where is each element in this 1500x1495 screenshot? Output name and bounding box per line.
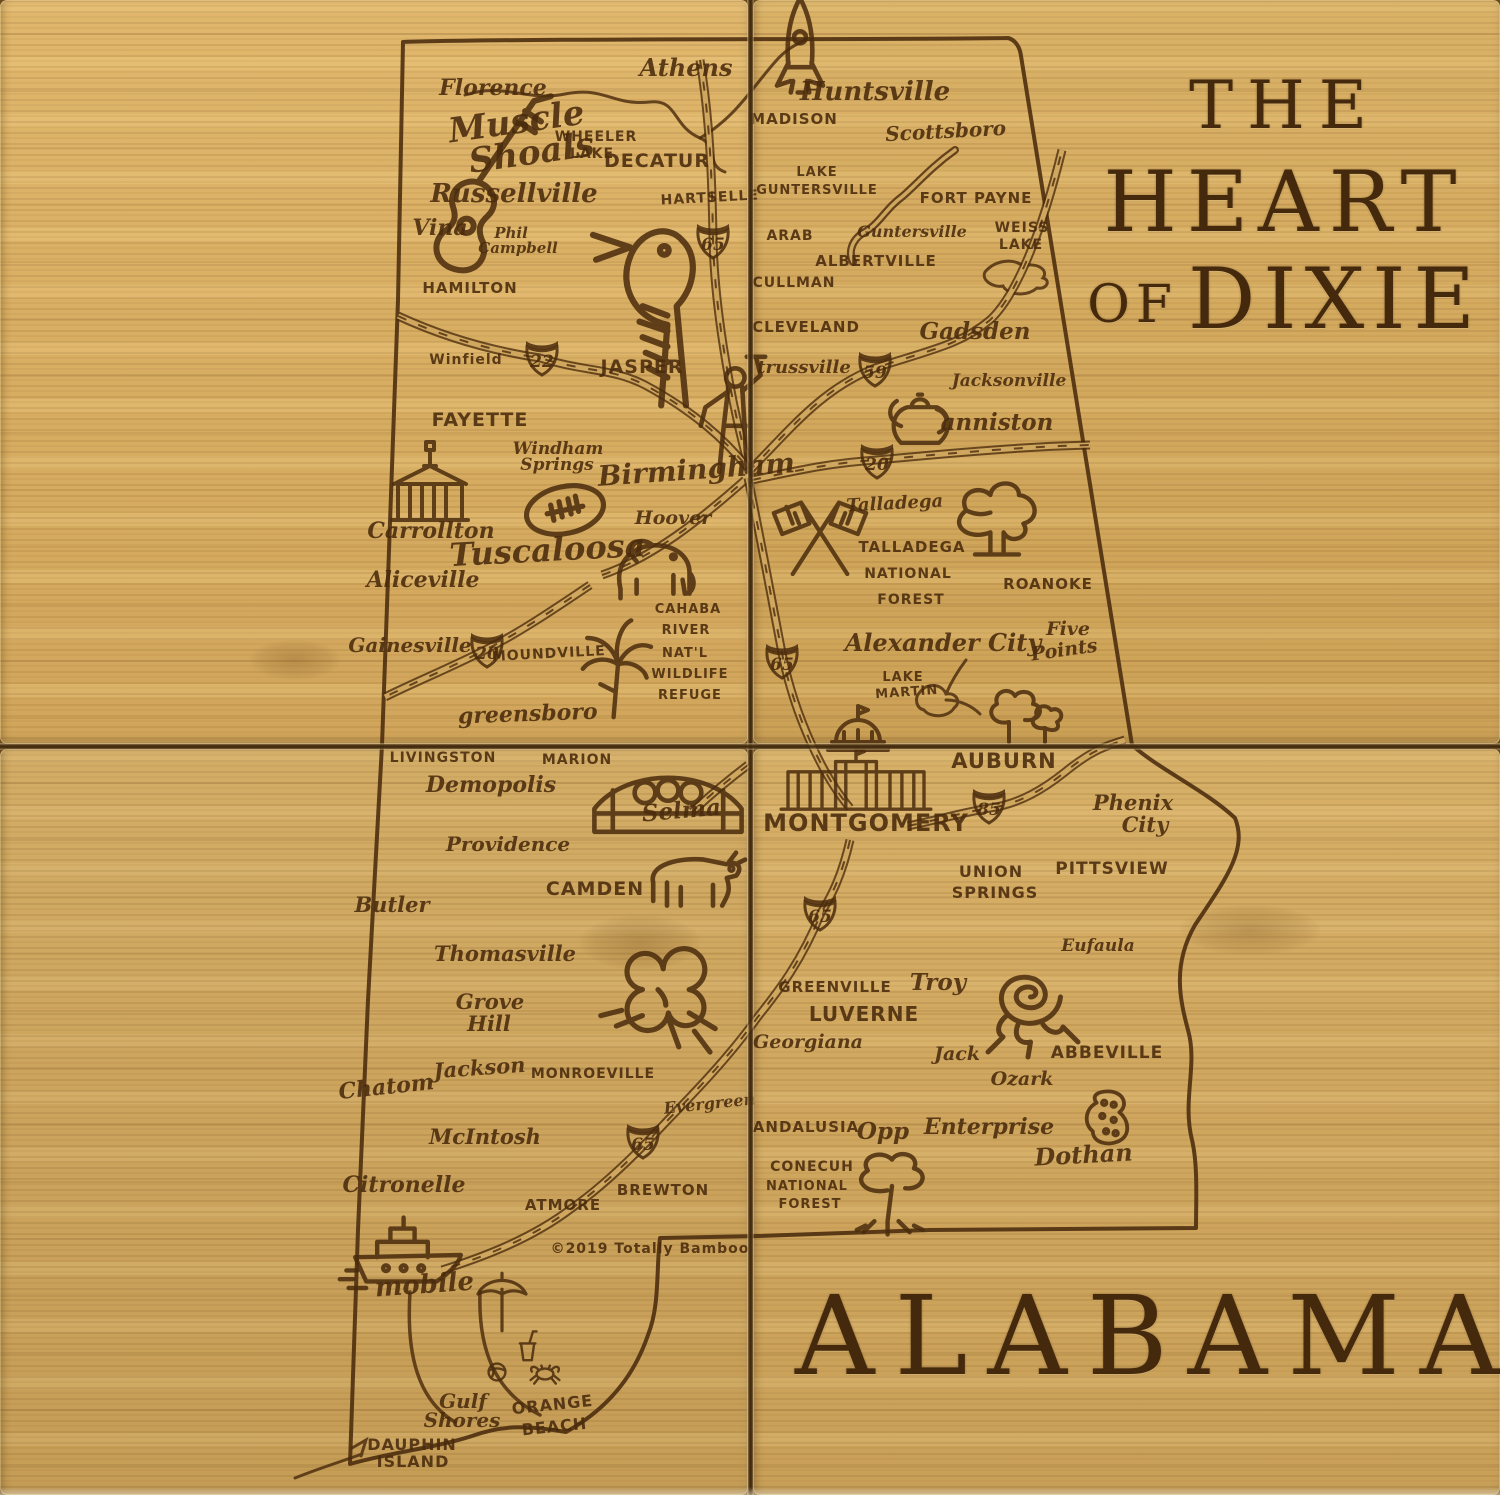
map-label: Florence: [438, 75, 547, 101]
highway-shield-59: 59: [859, 352, 891, 386]
map-label: FOREST: [877, 592, 944, 608]
map-label: Hill: [466, 1011, 511, 1036]
capitol-building-icon: [781, 748, 931, 809]
map-label: SPRINGS: [952, 883, 1039, 902]
map-label: MARTIN: [875, 683, 939, 702]
cow-icon: [653, 853, 745, 906]
svg-text:65: 65: [808, 907, 832, 927]
map-label: MADISON: [750, 110, 838, 128]
teapot-icon: [890, 395, 948, 443]
map-label: PITTSVIEW: [1055, 859, 1168, 879]
map-label: Demopolis: [425, 772, 556, 798]
map-label: CAHABA: [655, 602, 722, 617]
map-label: greensboro: [458, 699, 598, 730]
map-label: Aliceville: [364, 567, 479, 593]
state-name: ALABAMA: [795, 1272, 1500, 1400]
map-label: ABBEVILLE: [1051, 1043, 1163, 1063]
map-label: WILDLIFE: [651, 667, 728, 682]
svg-text:22: 22: [529, 352, 554, 372]
map-label: TALLADEGA: [858, 538, 965, 556]
map-label: Shores: [424, 1408, 501, 1432]
road-i20: [752, 445, 1090, 480]
map-label: ANDALUSIA: [753, 1118, 859, 1136]
map-label: City: [1122, 812, 1170, 837]
drink-icon: [520, 1331, 537, 1360]
title-line-of-dixie: OFDIXIE: [1075, 250, 1495, 348]
title-line-the: THE: [1075, 58, 1495, 154]
map-label: Campbell: [478, 239, 558, 257]
title-heart-of-dixie: THE HEART OFDIXIE: [1075, 58, 1495, 348]
map-label: Scottsboro: [885, 116, 1007, 146]
map-label: JASPER: [599, 356, 684, 378]
svg-text:65: 65: [631, 1135, 655, 1155]
map-label: ISLAND: [377, 1452, 450, 1471]
map-label: Gainesville: [348, 633, 471, 657]
map-label: Birmingham: [596, 446, 796, 493]
map-label: FOREST: [778, 1197, 841, 1212]
map-label: CULLMAN: [753, 275, 836, 291]
map-label: Springs: [520, 455, 594, 475]
map-label: MONTGOMERY: [763, 809, 969, 837]
map-label: Citronelle: [343, 1172, 466, 1198]
map-label: WHEELER: [555, 129, 638, 145]
map-label: ROANOKE: [1003, 575, 1093, 593]
map-label: Jackson: [429, 1052, 526, 1084]
highway-shield-20: 20: [861, 444, 893, 478]
map-label: Evergreen: [662, 1089, 756, 1118]
trees-icon: [991, 691, 1061, 742]
map-label: Jack: [931, 1043, 980, 1065]
map-label: Guntersville: [857, 222, 967, 241]
map-label: FORT PAYNE: [920, 189, 1033, 207]
map-label: Opp: [857, 1118, 909, 1145]
map-label: ©2019 Totally Bamboo: [551, 1241, 750, 1257]
svg-text:20: 20: [864, 455, 889, 475]
map-label: Butler: [353, 892, 431, 917]
peanut-icon: [1087, 1091, 1128, 1143]
map-label: Selma: [641, 794, 722, 828]
map-label: Eufaula: [1060, 936, 1134, 956]
map-label: Talladega: [846, 490, 944, 516]
oak-tree-icon: [959, 483, 1035, 554]
map-label: NATIONAL: [766, 1179, 848, 1194]
title-word-dixie: DIXIE: [1188, 250, 1483, 348]
map-label: CLEVELAND: [752, 318, 860, 336]
map-label: DECATUR: [604, 150, 710, 172]
map-label: Enterprise: [923, 1114, 1054, 1140]
coaster-puzzle-board: 652220592065856565FlorenceMuscleShoalsWH…: [0, 0, 1500, 1495]
pine-tree-icon: [857, 1154, 923, 1234]
map-label: MARION: [542, 752, 612, 768]
map-label: LAKE: [999, 237, 1043, 253]
map-label: Alexander City: [843, 628, 1044, 657]
map-label: NAT'L: [662, 646, 708, 661]
title-line-heart: HEART: [1075, 154, 1495, 251]
map-label: Jacksonville: [949, 371, 1067, 391]
map-label: LUVERNE: [809, 1002, 919, 1026]
map-label: GUNTERSVILLE: [756, 183, 878, 198]
map-label: REFUGE: [658, 688, 722, 703]
highway-shield-65: 65: [697, 224, 729, 258]
map-label: FAYETTE: [432, 409, 529, 431]
board-bottom-edge: [0, 1487, 1500, 1495]
map-label: CAMDEN: [546, 878, 644, 900]
svg-text:65: 65: [701, 235, 725, 255]
map-label: Troy: [910, 969, 968, 996]
map-label: Vina: [412, 215, 467, 241]
svg-text:85: 85: [976, 800, 1001, 820]
courthouse-icon: [392, 442, 468, 520]
map-label: BREWTON: [617, 1181, 709, 1199]
dauphin-spit: [295, 1440, 366, 1478]
map-label: anniston: [941, 409, 1054, 436]
map-label: Russellville: [429, 179, 597, 209]
map-label: UNION: [959, 862, 1023, 881]
map-label: RIVER: [662, 623, 711, 638]
map-label: Huntsville: [799, 77, 950, 107]
map-label: GREENVILLE: [778, 978, 891, 996]
map-label: trussville: [757, 357, 851, 378]
map-label: LIVINGSTON: [390, 750, 497, 766]
map-label: ATMORE: [525, 1196, 601, 1214]
map-label: ARAB: [766, 228, 813, 244]
title-word-of: OF: [1087, 275, 1178, 335]
map-label: Providence: [445, 832, 570, 856]
highway-shield-65: 65: [766, 644, 798, 678]
svg-text:65: 65: [770, 655, 794, 675]
map-label: AUBURN: [951, 749, 1056, 773]
map-label: HARTSELLE: [660, 187, 759, 208]
map-label: mobile: [374, 1267, 475, 1304]
map-label: LAKE: [882, 670, 923, 685]
map-label: Dothan: [1033, 1137, 1134, 1171]
map-label: Athens: [638, 53, 733, 82]
map-label: Chatom: [337, 1069, 435, 1105]
map-label: Gadsden: [919, 318, 1030, 345]
cotton-icon: [601, 949, 715, 1052]
map-label: NATIONAL: [864, 566, 952, 582]
map-label: McIntosh: [428, 1124, 541, 1149]
umbrella-icon: [478, 1273, 526, 1331]
map-label: HAMILTON: [422, 279, 517, 297]
map-label: MONROEVILLE: [531, 1066, 655, 1082]
map-label: Ozark: [991, 1068, 1054, 1090]
map-label: Thomasville: [434, 941, 576, 966]
highway-shield-22: 22: [526, 341, 558, 375]
map-label: BEACH: [521, 1414, 588, 1440]
map-label: LAKE: [796, 165, 837, 180]
map-label: WEISS: [995, 220, 1050, 236]
map-label: Winfield: [429, 352, 502, 368]
map-label: CONECUH: [770, 1159, 854, 1175]
crab-icon: [531, 1366, 560, 1384]
highway-shield-85: 85: [973, 789, 1005, 823]
map-label: Hoover: [634, 507, 713, 529]
coaster-seam-horizontal: [0, 743, 1500, 750]
highway-shield-65: 65: [627, 1124, 659, 1158]
map-label: ALBERTVILLE: [815, 252, 937, 270]
map-label: Georgiana: [753, 1031, 863, 1053]
highway-shield-65: 65: [804, 896, 836, 930]
svg-text:59: 59: [863, 363, 887, 383]
